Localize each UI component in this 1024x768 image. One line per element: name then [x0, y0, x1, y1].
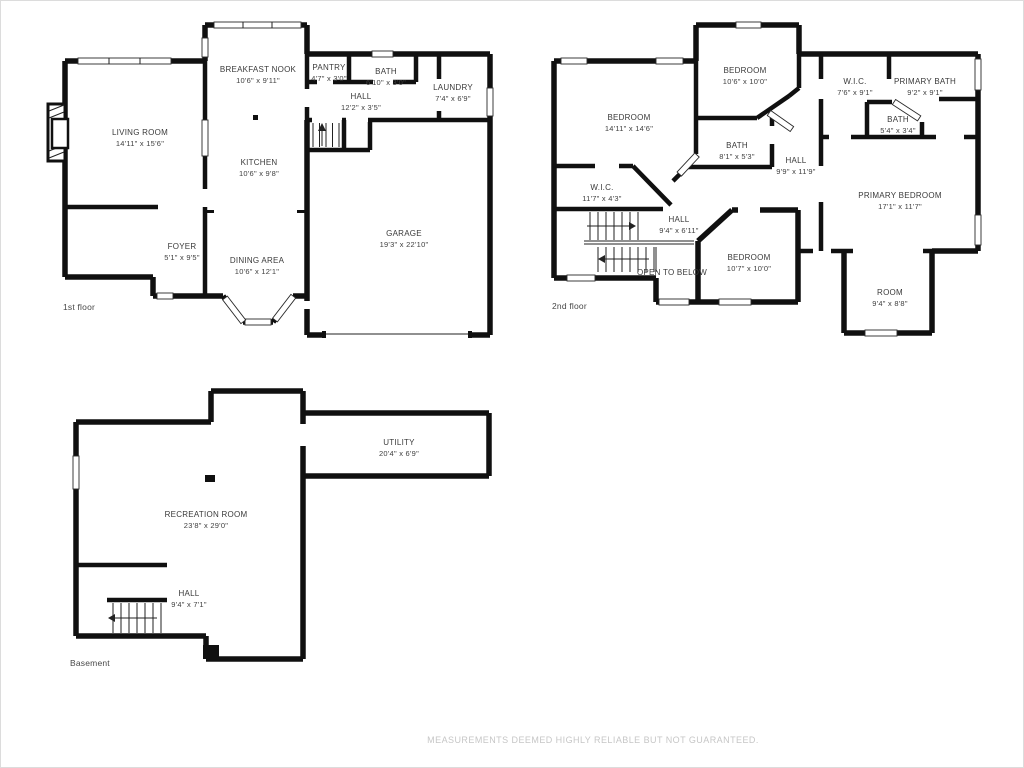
floor-title-first-floor: 1st floor: [63, 302, 95, 312]
room-label: FOYER5'1" x 9'5": [164, 242, 200, 263]
room-name: UTILITY: [379, 438, 419, 449]
room-name: KITCHEN: [239, 158, 279, 169]
room-dimensions: 7'6" x 9'1": [837, 88, 873, 99]
second-floor-plan: [554, 22, 981, 336]
room-dimensions: 23'8" x 29'0": [165, 521, 248, 532]
room-name: BEDROOM: [605, 113, 653, 124]
room-dimensions: 10'6" x 9'11": [220, 76, 296, 87]
room-dimensions: 12'2" x 3'5": [341, 103, 381, 114]
room-dimensions: 9'4" x 6'11": [659, 226, 698, 237]
room-name: W.I.C.: [582, 183, 621, 194]
room-dimensions: 9'2" x 9'1": [894, 88, 956, 99]
room-label: HALL9'9" x 11'9": [776, 156, 815, 177]
room-name: ROOM: [872, 288, 908, 299]
room-label: BATH5'4" x 3'4": [880, 115, 916, 136]
room-name: GARAGE: [380, 229, 429, 240]
room-name: HALL: [776, 156, 815, 167]
room-label: BATH8'1" x 5'3": [719, 141, 755, 162]
room-name: W.I.C.: [837, 77, 873, 88]
room-name: FOYER: [164, 242, 200, 253]
room-label: BEDROOM14'11" x 14'6": [605, 113, 653, 134]
first-floor-stairs: [313, 123, 339, 147]
room-label: DINING AREA10'6" x 12'1": [230, 256, 284, 277]
room-dimensions: 10'6" x 9'8": [239, 169, 279, 180]
floor-title-second-floor: 2nd floor: [552, 301, 587, 311]
second-floor-windows: [561, 22, 981, 336]
room-label: GARAGE19'3" x 22'10": [380, 229, 429, 250]
room-dimensions: 9'4" x 8'8": [872, 299, 908, 310]
room-label: HALL12'2" x 3'5": [341, 92, 381, 113]
room-dimensions: 7'4" x 6'9": [433, 94, 473, 105]
room-label: KITCHEN10'6" x 9'8": [239, 158, 279, 179]
room-name: BREAKFAST NOOK: [220, 65, 296, 76]
basement-plan: [73, 391, 489, 659]
room-label: UTILITY20'4" x 6'9": [379, 438, 419, 459]
room-dimensions: 9'4" x 7'1": [171, 600, 207, 611]
room-label: ROOM9'4" x 8'8": [872, 288, 908, 309]
room-dimensions: 9'9" x 11'9": [776, 167, 815, 178]
room-name: BATH: [880, 115, 916, 126]
room-name: BATH: [719, 141, 755, 152]
room-label: RECREATION ROOM23'8" x 29'0": [165, 510, 248, 531]
room-label: BEDROOM10'6" x 10'0": [723, 66, 767, 87]
floor-title-basement: Basement: [70, 658, 110, 668]
room-dimensions: 14'11" x 15'6": [112, 139, 168, 150]
room-label: PANTRY4'7" x 3'0": [311, 63, 347, 84]
room-label: LAUNDRY7'4" x 6'9": [433, 83, 473, 104]
room-label: HALL9'4" x 6'11": [659, 215, 698, 236]
room-name: LIVING ROOM: [112, 128, 168, 139]
room-dimensions: 5'4" x 3'4": [880, 126, 916, 137]
room-name: BEDROOM: [723, 66, 767, 77]
room-name: RECREATION ROOM: [165, 510, 248, 521]
room-name: BATH: [366, 67, 406, 78]
floorplan-drawing: [1, 1, 1024, 768]
room-name: HALL: [171, 589, 207, 600]
room-dimensions: 10'7" x 10'0": [727, 264, 771, 275]
disclaimer-text: MEASUREMENTS DEEMED HIGHLY RELIABLE BUT …: [427, 735, 759, 745]
basement-stairs: [108, 603, 161, 633]
fireplace: [48, 104, 68, 161]
room-label: PRIMARY BATH9'2" x 9'1": [894, 77, 956, 98]
room-name: PRIMARY BATH: [894, 77, 956, 88]
room-name: HALL: [341, 92, 381, 103]
room-dimensions: 8'1" x 5'3": [719, 152, 755, 163]
floorplan-page: LIVING ROOM14'11" x 15'6"BREAKFAST NOOK1…: [0, 0, 1024, 768]
room-name: BEDROOM: [727, 253, 771, 264]
room-dimensions: 5'1" x 9'5": [164, 253, 200, 264]
room-name: OPEN TO BELOW: [637, 268, 707, 279]
room-label: BATH6'10" x 3'0": [366, 67, 406, 88]
room-name: HALL: [659, 215, 698, 226]
room-name: DINING AREA: [230, 256, 284, 267]
room-dimensions: 11'7" x 4'3": [582, 194, 621, 205]
room-dimensions: 20'4" x 6'9": [379, 449, 419, 460]
room-dimensions: 10'6" x 12'1": [230, 267, 284, 278]
room-dimensions: 6'10" x 3'0": [366, 78, 406, 89]
room-name: PRIMARY BEDROOM: [858, 191, 941, 202]
room-name: PANTRY: [311, 63, 347, 74]
room-dimensions: 14'11" x 14'6": [605, 124, 653, 135]
room-dimensions: 17'1" x 11'7": [858, 202, 941, 213]
room-label: HALL9'4" x 7'1": [171, 589, 207, 610]
basement-window: [73, 456, 79, 489]
room-dimensions: 19'3" x 22'10": [380, 240, 429, 251]
room-label: BEDROOM10'7" x 10'0": [727, 253, 771, 274]
room-label: LIVING ROOM14'11" x 15'6": [112, 128, 168, 149]
room-label: BREAKFAST NOOK10'6" x 9'11": [220, 65, 296, 86]
room-label: PRIMARY BEDROOM17'1" x 11'7": [858, 191, 941, 212]
room-name: LAUNDRY: [433, 83, 473, 94]
room-dimensions: 10'6" x 10'0": [723, 77, 767, 88]
room-label: OPEN TO BELOW: [637, 268, 707, 279]
room-label: W.I.C.7'6" x 9'1": [837, 77, 873, 98]
room-label: W.I.C.11'7" x 4'3": [582, 183, 621, 204]
room-dimensions: 4'7" x 3'0": [311, 74, 347, 85]
